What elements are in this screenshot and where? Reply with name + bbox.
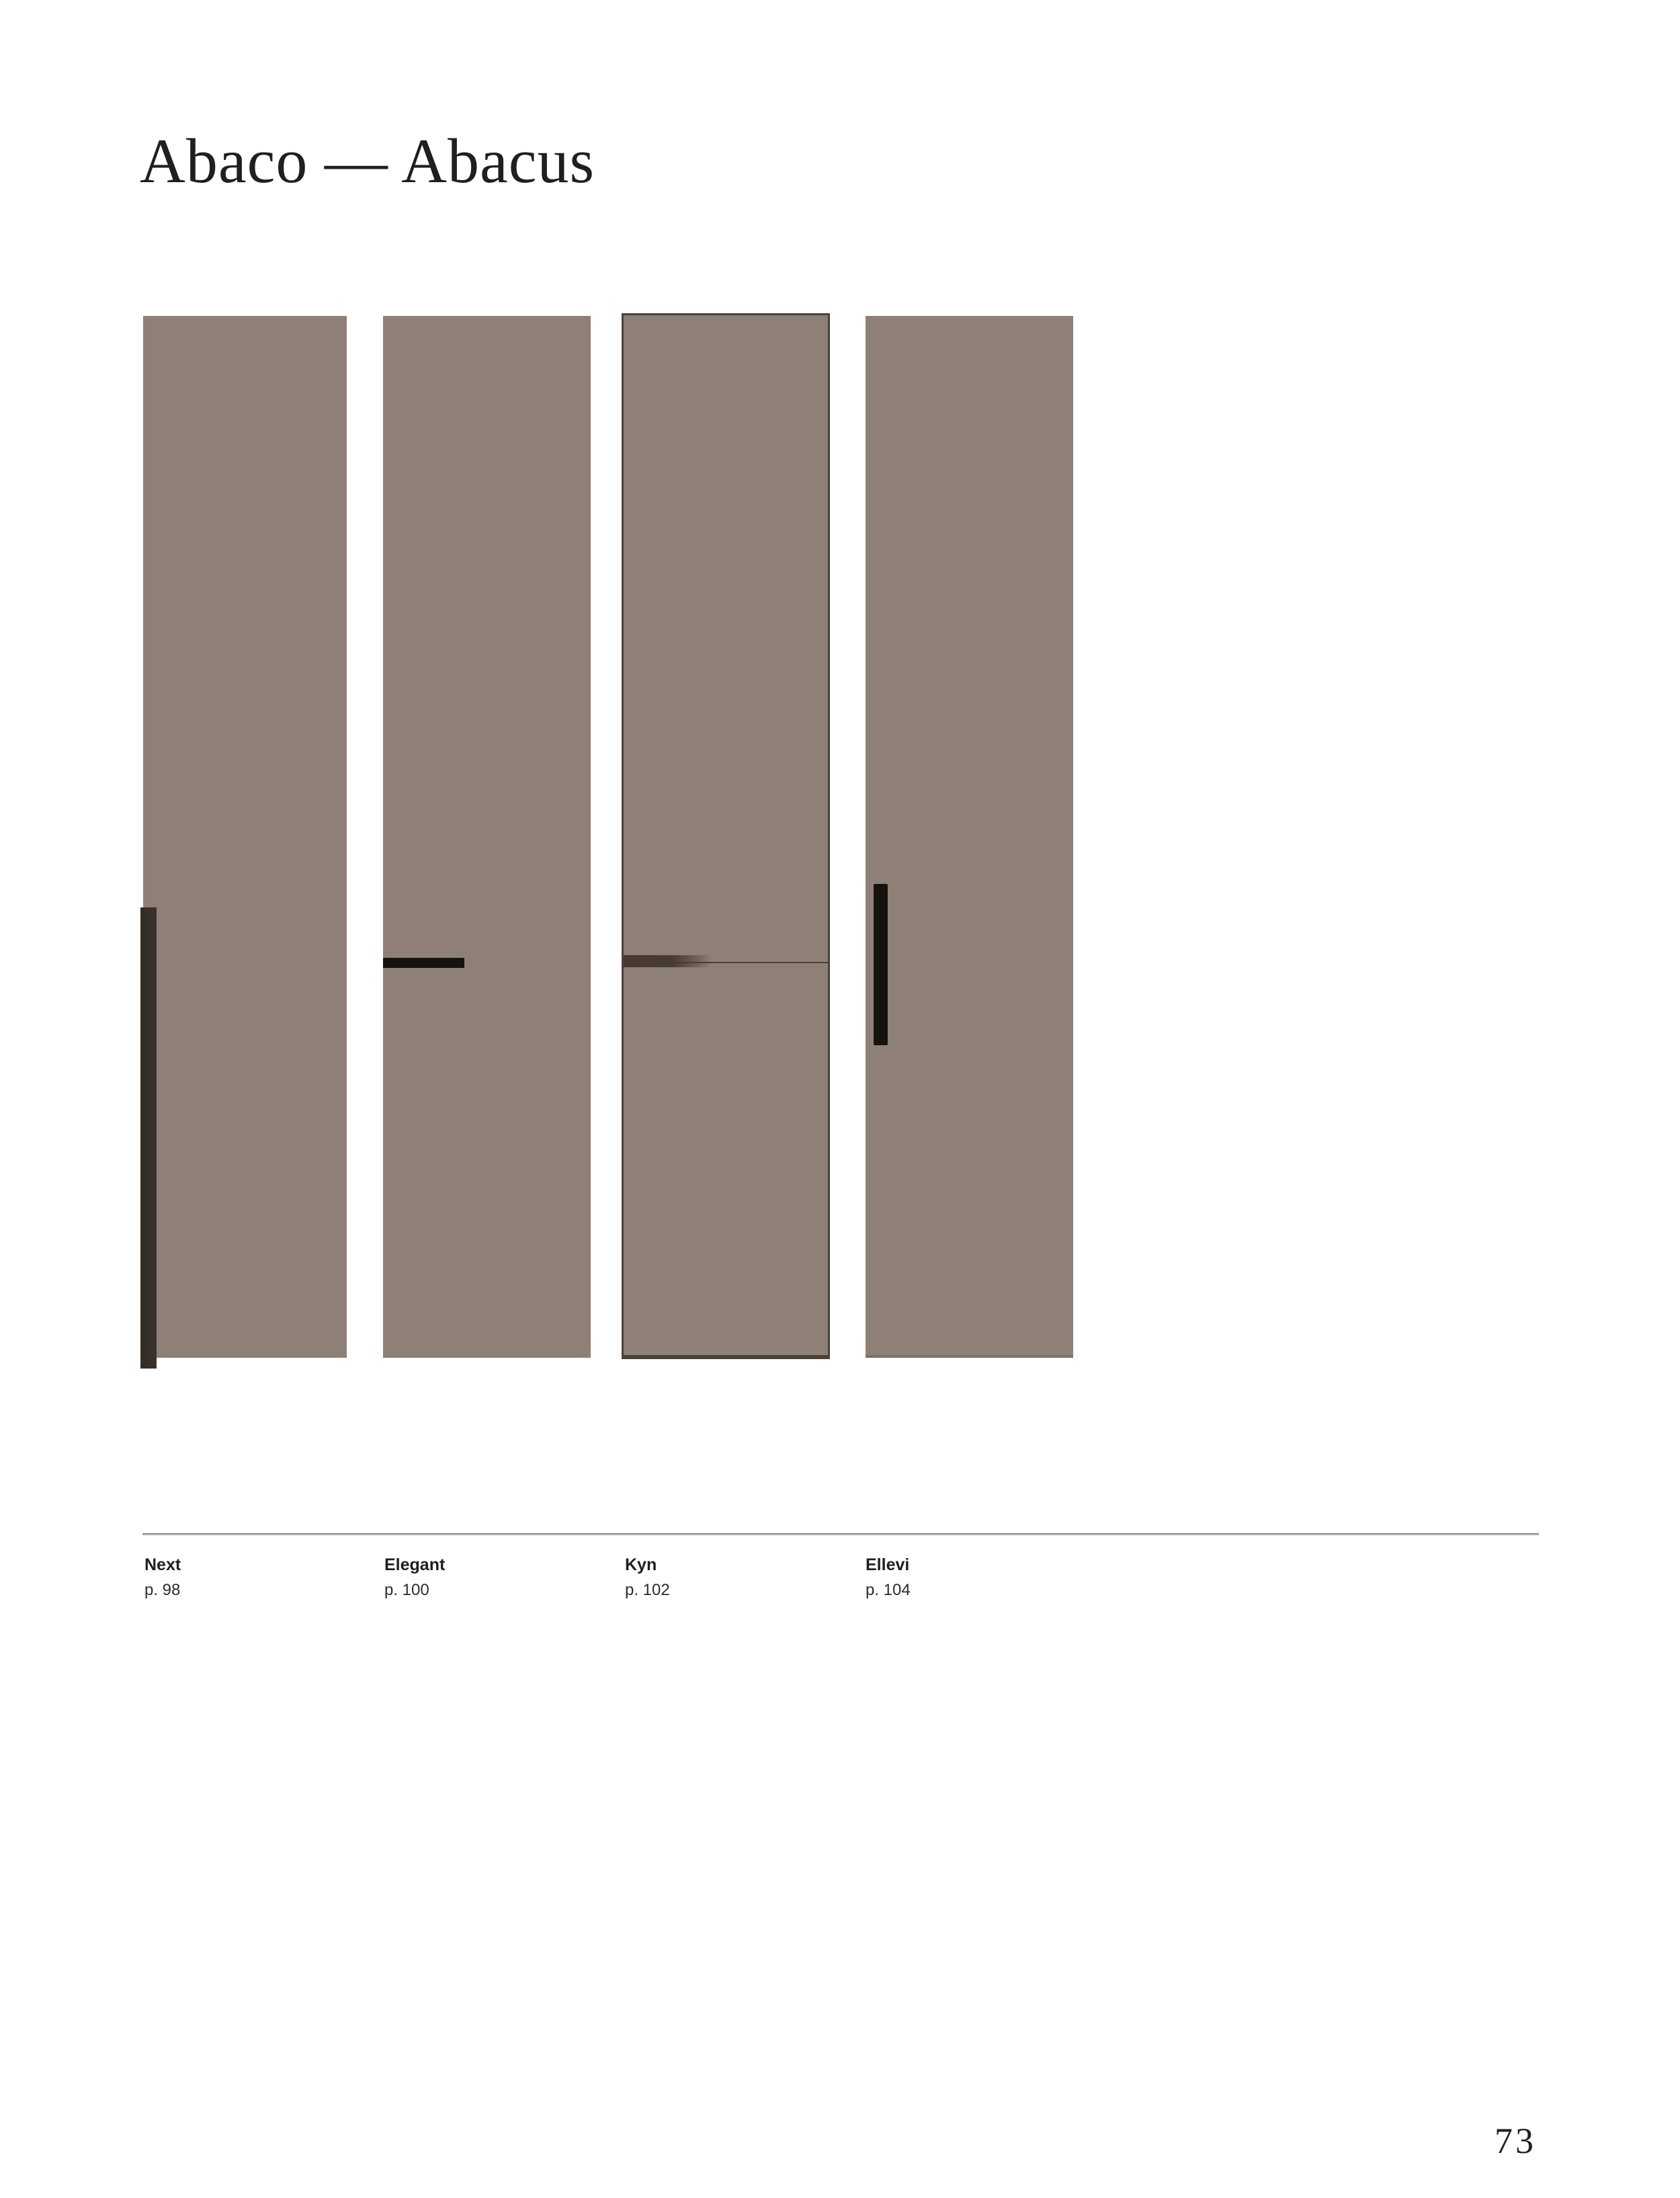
product-page-ref: p. 100	[384, 1581, 559, 1600]
door-panel-next	[143, 316, 347, 1358]
door-panel-kyn	[622, 313, 830, 1359]
product-name: Next	[144, 1555, 319, 1575]
product-label-kyn: Kyn p. 102	[625, 1555, 800, 1599]
door-panel-elegant	[383, 316, 591, 1358]
divider-rule	[142, 1533, 1539, 1535]
product-name: Kyn	[625, 1555, 800, 1575]
kyn-groove-handle	[624, 955, 712, 967]
product-name: Ellevi	[866, 1555, 1040, 1575]
product-label-elegant: Elegant p. 100	[384, 1555, 559, 1599]
door-panel-ellevi	[866, 316, 1073, 1358]
page-number: 73	[1495, 2123, 1536, 2159]
product-page-ref: p. 98	[144, 1581, 319, 1600]
product-page-ref: p. 104	[866, 1581, 1040, 1600]
product-name: Elegant	[384, 1555, 559, 1575]
product-label-ellevi: Ellevi p. 104	[866, 1555, 1040, 1599]
page-title: Abaco — Abacus	[140, 130, 595, 193]
ellevi-bar-handle	[874, 884, 888, 1045]
next-edge-handle	[140, 907, 157, 1369]
product-page-ref: p. 102	[625, 1581, 800, 1600]
catalog-page: Abaco — Abacus Next p. 98 Elegant p. 100…	[0, 0, 1680, 2198]
product-label-next: Next p. 98	[144, 1555, 319, 1599]
elegant-bar-handle	[383, 958, 464, 968]
